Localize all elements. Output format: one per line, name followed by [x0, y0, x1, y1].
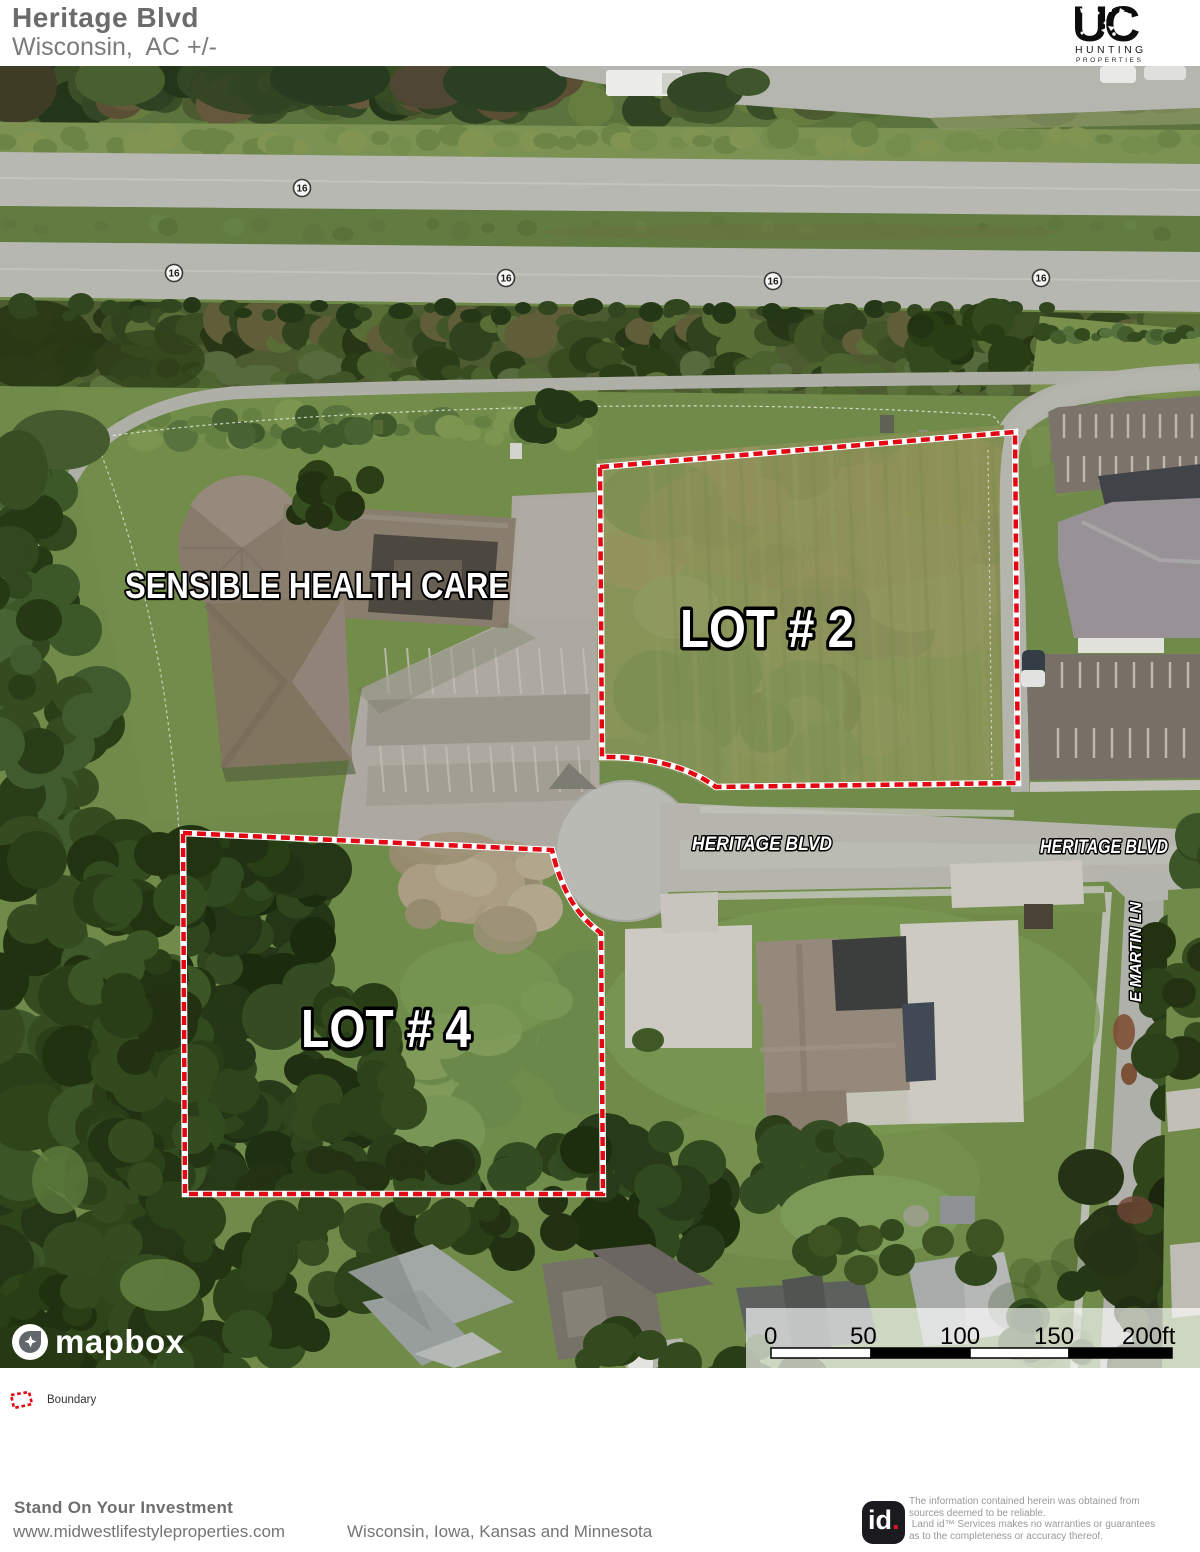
svg-text:SENSIBLE HEALTH CARE: SENSIBLE HEALTH CARE: [125, 565, 509, 606]
svg-text:E MARTIN LN: E MARTIN LN: [1128, 901, 1145, 1002]
svg-text:LOT # 2: LOT # 2: [680, 599, 854, 659]
svg-text:PROPERTIES: PROPERTIES: [1076, 57, 1143, 64]
svg-text:0: 0: [764, 1323, 777, 1350]
svg-text:150: 150: [1034, 1323, 1074, 1350]
svg-text:200ft: 200ft: [1122, 1323, 1176, 1350]
svg-text:LOT # 4: LOT # 4: [301, 999, 471, 1059]
svg-text:HUNTING: HUNTING: [1075, 44, 1147, 56]
svg-text:HERITAGE BLVD: HERITAGE BLVD: [1040, 837, 1168, 858]
svg-text:100: 100: [940, 1323, 980, 1350]
svg-text:50: 50: [850, 1323, 877, 1350]
svg-text:mapbox: mapbox: [55, 1323, 185, 1360]
svg-text:HERITAGE BLVD: HERITAGE BLVD: [692, 834, 832, 855]
